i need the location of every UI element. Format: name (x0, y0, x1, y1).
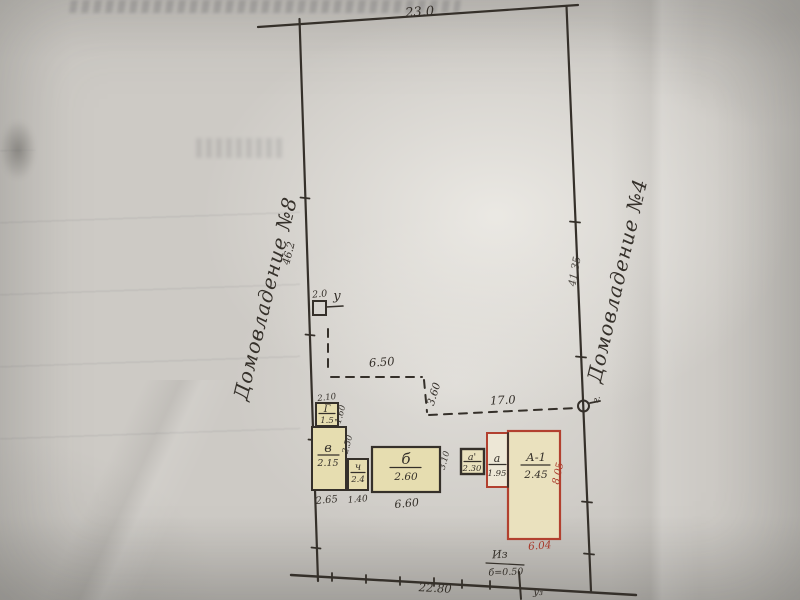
dim-right: 41.35 (566, 255, 583, 288)
neighbor-right-label: Домовладение №4 (582, 176, 653, 386)
building-v-height: 2.15 (316, 458, 338, 469)
note-iz: Из (491, 548, 508, 562)
building-a1-rect (508, 431, 560, 539)
dim-fence-3: 17.0 (490, 392, 516, 407)
building-a1-width: 6.04 (528, 539, 552, 553)
porch-a-height: 1.95 (488, 469, 507, 479)
boundary-bottom (291, 575, 636, 595)
site-plan-drawing: 23.0 22.80 Домовладение №8 46.2 Домовлад… (0, 0, 800, 600)
neighbor-left-label: Домовладение №8 (228, 194, 302, 403)
building-g-height: 1.5 (320, 416, 334, 426)
note-iz-value: б=0.50 (488, 566, 523, 578)
building-a2-height: 2.30 (462, 464, 483, 474)
building-a1-label: А-1 (525, 450, 546, 464)
dim-bottom: 22.80 (417, 580, 452, 596)
porch-a-label: а (494, 452, 501, 465)
building-g-label: Г (323, 404, 331, 415)
building-v-label: в (324, 441, 332, 456)
boundary-right (567, 6, 592, 591)
well-offset-dim: 2.0 (311, 288, 328, 301)
note-u3: у₃ (532, 587, 543, 599)
well-connector-line (326, 306, 343, 307)
building-v-width: 2.65 (314, 494, 338, 507)
well-mark: у (332, 289, 341, 304)
building-ch-height: 2.4 (350, 475, 365, 485)
building-b-label: б (401, 450, 411, 468)
building-ch-label: ч (355, 462, 361, 473)
building-b-height: 2.60 (393, 471, 418, 483)
inner-fence-dashed-line (328, 329, 576, 415)
scanned-plan-page: 23.0 22.80 Домовладение №8 46.2 Домовлад… (0, 0, 800, 600)
building-ch-width: 1.40 (347, 494, 368, 506)
building-a2-label: а' (468, 452, 476, 463)
well-square (313, 301, 326, 315)
building-a1-height: 2.45 (523, 469, 548, 481)
dim-fence-1: 6.50 (368, 354, 395, 370)
dim-top: 23.0 (404, 4, 435, 21)
building-b-width: 6.60 (394, 496, 420, 511)
dim-fence-2: 3.60 (425, 381, 443, 407)
